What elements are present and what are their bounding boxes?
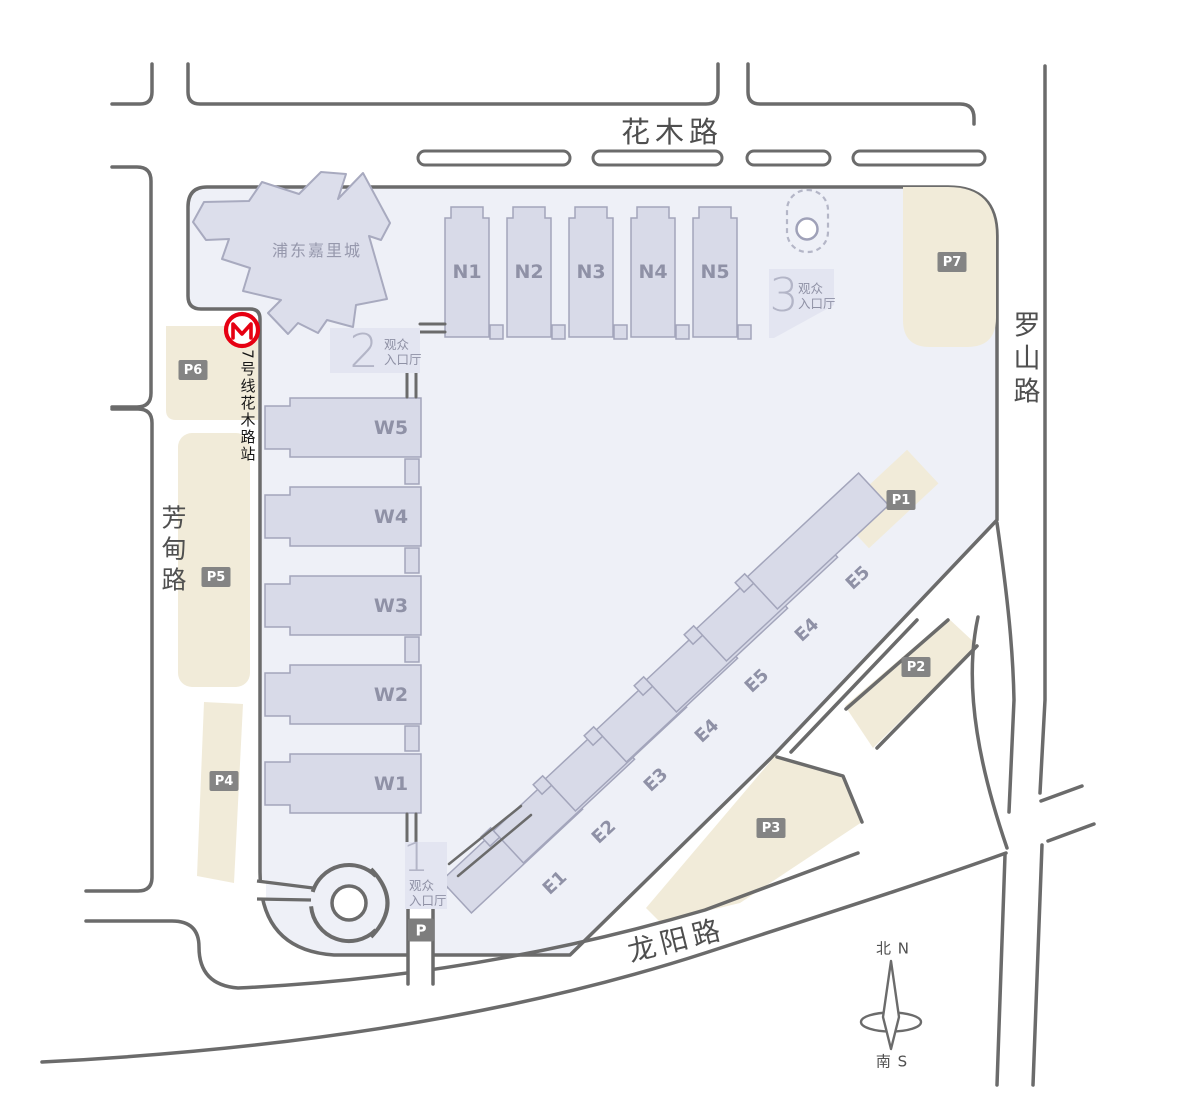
entrance-2-label-line2: 入口厅 (384, 352, 422, 367)
parking-badge-p5: P5 (202, 567, 231, 587)
entrance-1-label-line1: 观众 (409, 878, 447, 893)
entrance-2-number: 2 (349, 324, 378, 378)
entrance-1-label: 观众 入口厅 (409, 878, 447, 908)
parking-area-p4 (197, 702, 243, 883)
compass-south-label: 南 S (876, 1051, 908, 1072)
parking-badge-p7: P7 (938, 252, 967, 272)
metro-logo-icon (226, 314, 258, 346)
hall-label-w5: W5 (374, 417, 408, 439)
road-label-huamu: 花木路 (621, 109, 723, 151)
parking-badge-p4: P4 (210, 771, 239, 791)
entrance-2-label-line1: 观众 (384, 337, 422, 352)
entrance-3-label-line2: 入口厅 (798, 296, 836, 311)
entrance-3-number: 3 (769, 268, 798, 322)
hall-label-w1: W1 (374, 773, 408, 795)
parking-badge-p1: P1 (887, 490, 916, 510)
parking-badge-p2: P2 (902, 657, 931, 677)
hall-label-n4: N4 (638, 261, 667, 283)
entrance-1-number: 1 (403, 835, 428, 881)
compass-rose (861, 961, 921, 1049)
parking-badge-entrance1: P (408, 919, 434, 942)
hall-label-n1: N1 (452, 261, 481, 283)
entrance-3-label-line1: 观众 (798, 281, 836, 296)
entrance-1-label-line2: 入口厅 (409, 893, 447, 908)
kerry-parkside-label: 浦东嘉里城 (272, 237, 362, 261)
metro-station-label: 7号线花木路站 (238, 349, 259, 463)
parking-badge-p3: P3 (757, 818, 786, 838)
road-label-luoshan: 罗山路 (1005, 311, 1044, 410)
sniec-campus-map: 花木路 罗山路 芳甸路 龙阳路 浦东嘉里城 7号线花木路站 N1 N2 N3 N… (0, 0, 1200, 1101)
entrance-2-label: 观众 入口厅 (384, 337, 422, 367)
hall-label-n2: N2 (514, 261, 543, 283)
hall-label-w2: W2 (374, 684, 408, 706)
road-label-fangdian: 芳甸路 (154, 505, 190, 598)
road-median-pills (418, 151, 985, 165)
hall-label-w3: W3 (374, 595, 408, 617)
hall-label-n3: N3 (576, 261, 605, 283)
hall-label-w4: W4 (374, 506, 408, 528)
compass-north-label: 北 N (876, 938, 910, 959)
hall-label-n5: N5 (700, 261, 729, 283)
parking-badge-p6: P6 (179, 360, 208, 380)
entrance-3-label: 观众 入口厅 (798, 281, 836, 311)
